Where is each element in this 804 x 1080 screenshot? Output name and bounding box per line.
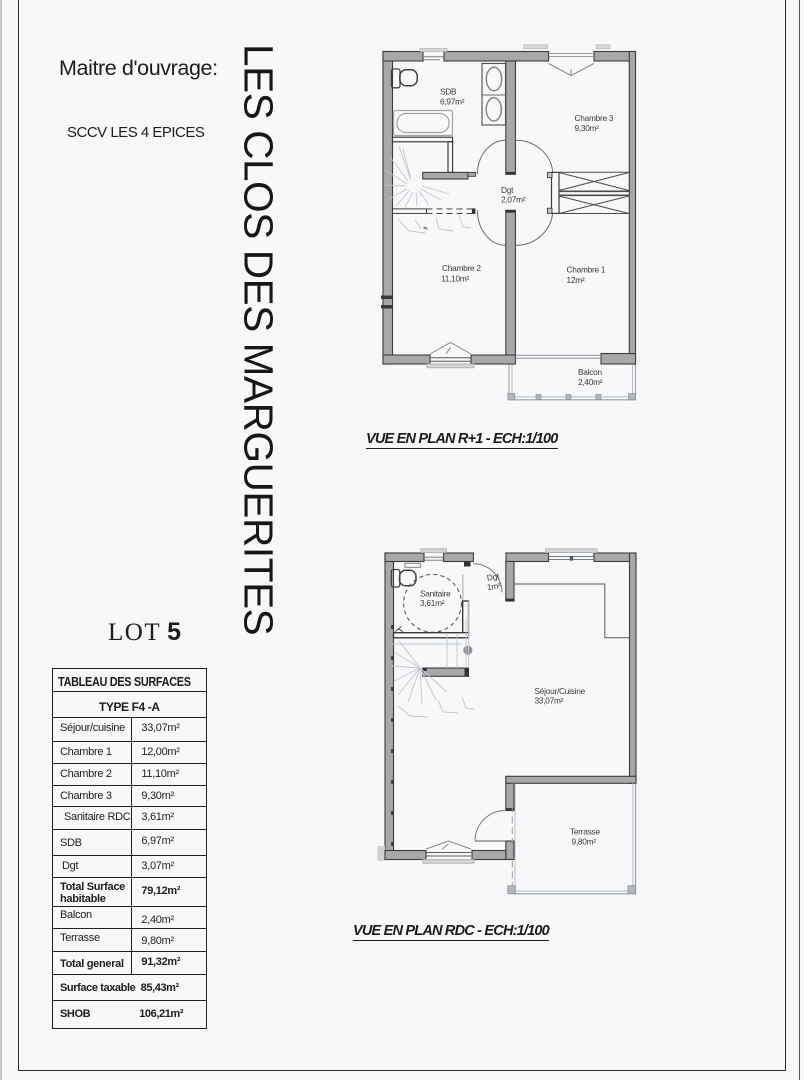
- svg-text:1m²: 1m²: [486, 580, 501, 592]
- svg-text:2,40m²: 2,40m²: [578, 377, 603, 387]
- svg-text:Chambre 3: Chambre 3: [575, 113, 614, 123]
- svg-text:Dgt: Dgt: [501, 185, 514, 195]
- svg-text:Sanitaire: Sanitaire: [420, 589, 451, 599]
- svg-text:9,30m²: 9,30m²: [575, 123, 600, 133]
- svg-text:Séjour/Cuisine: Séjour/Cuisine: [535, 686, 586, 696]
- svg-text:Terrasse: Terrasse: [570, 827, 600, 837]
- svg-text:11,10m²: 11,10m²: [441, 274, 470, 284]
- svg-text:12m²: 12m²: [567, 275, 585, 285]
- svg-text:SDB: SDB: [440, 87, 457, 97]
- svg-text:Chambre 2: Chambre 2: [442, 263, 481, 273]
- svg-text:Balcon: Balcon: [578, 367, 603, 377]
- svg-text:33,07m²: 33,07m²: [535, 696, 564, 706]
- svg-text:9,80m²: 9,80m²: [572, 837, 597, 847]
- svg-text:2,07m²: 2,07m²: [501, 195, 526, 205]
- svg-text:6,97m²: 6,97m²: [440, 97, 465, 107]
- svg-text:Chambre 1: Chambre 1: [567, 265, 606, 275]
- svg-text:3,61m²: 3,61m²: [420, 598, 445, 608]
